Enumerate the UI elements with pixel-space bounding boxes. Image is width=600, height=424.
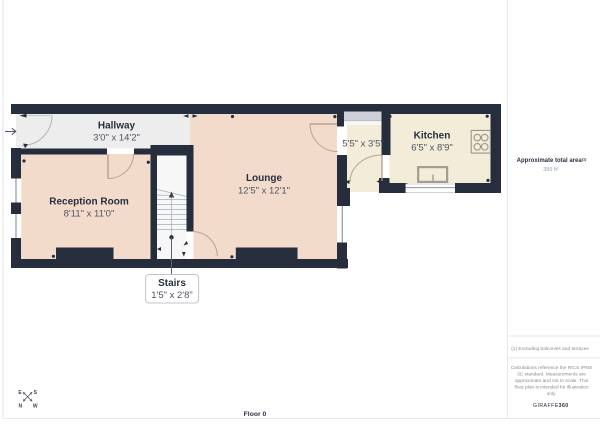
svg-text:Hallway: Hallway xyxy=(98,121,136,132)
svg-text:Stairs: Stairs xyxy=(158,278,186,289)
svg-text:6'5" x 8'9": 6'5" x 8'9" xyxy=(411,143,453,154)
svg-text:Approximate total area(1): Approximate total area(1) xyxy=(517,157,587,164)
svg-text:GIRAFFE360: GIRAFFE360 xyxy=(533,403,569,409)
svg-text:Floor 0: Floor 0 xyxy=(244,411,267,418)
svg-text:N: N xyxy=(18,403,22,409)
svg-text:W: W xyxy=(33,403,38,409)
svg-text:approximate and not to scale.: approximate and not to scale. This xyxy=(515,378,589,384)
svg-text:floor plan is intended for ill: floor plan is intended for illustration xyxy=(514,385,588,391)
svg-text:only.: only. xyxy=(547,391,557,397)
svg-text:Calculations reference the RIC: Calculations reference the RICS IPMS xyxy=(511,365,593,371)
svg-text:8'11" x 11'0": 8'11" x 11'0" xyxy=(64,209,115,220)
svg-text:389 ft²: 389 ft² xyxy=(543,167,559,173)
svg-text:12'5" x 12'1": 12'5" x 12'1" xyxy=(238,186,290,197)
svg-text:Reception Room: Reception Room xyxy=(49,197,129,208)
svg-text:5'5" x 3'5": 5'5" x 3'5" xyxy=(342,139,384,150)
svg-text:(1) Excluding balconies and te: (1) Excluding balconies and terraces xyxy=(511,346,589,352)
svg-text:3'0" x 14'2": 3'0" x 14'2" xyxy=(93,133,140,144)
svg-text:Lounge: Lounge xyxy=(246,173,283,184)
svg-text:3C standard. Measurements are: 3C standard. Measurements are xyxy=(517,372,586,378)
svg-text:1'5" x 2'8": 1'5" x 2'8" xyxy=(151,290,193,301)
svg-text:Kitchen: Kitchen xyxy=(414,131,451,142)
